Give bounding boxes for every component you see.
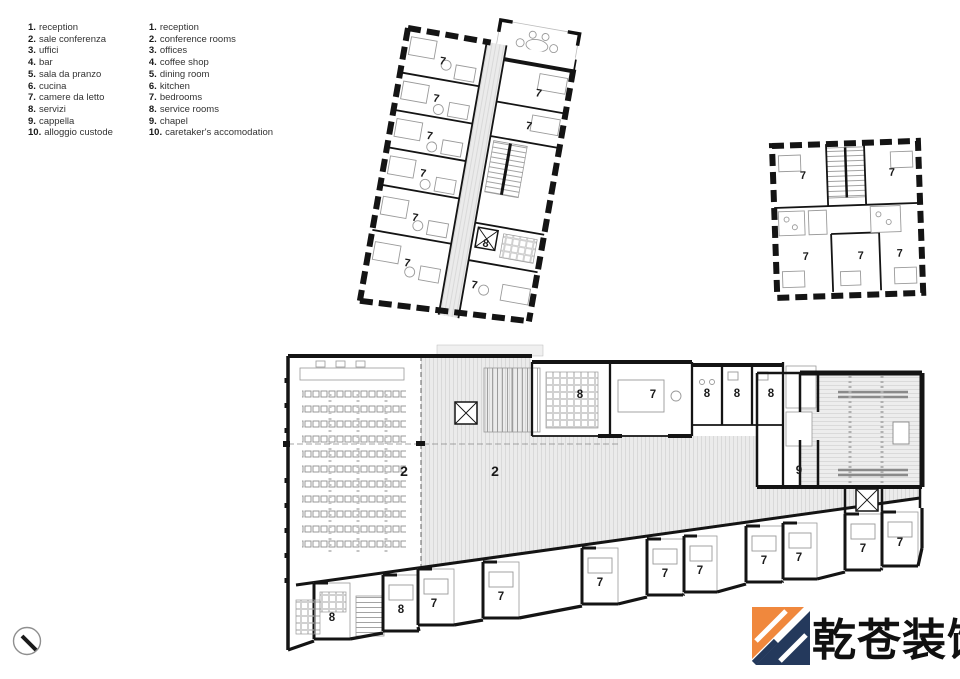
- stage-table: [300, 368, 404, 380]
- bedroom-unit: [383, 575, 419, 631]
- north-arrow-needle: [22, 636, 36, 650]
- room-label: 7: [897, 248, 904, 260]
- room-label: 7: [889, 167, 896, 179]
- bedroom-unit: [746, 526, 782, 582]
- storage-shelves: [546, 372, 598, 428]
- south-stair: [356, 596, 384, 636]
- room-label: 7: [800, 170, 807, 182]
- logo-mark: [752, 607, 810, 665]
- room-label: 8: [329, 612, 336, 624]
- plan-small-block: 7 7 7 7 7: [772, 141, 923, 298]
- room-label: 7: [796, 552, 802, 564]
- room-label: 2: [491, 463, 499, 479]
- plan-bedroom-wing: 7 7 7 7 7 7 7 7 8 7: [360, 4, 580, 330]
- bedroom-unit: [783, 523, 817, 579]
- grid-marker: [416, 441, 425, 446]
- room-label: 7: [858, 250, 865, 262]
- room-label: 7: [597, 577, 603, 589]
- bedroom-unit: [647, 539, 683, 595]
- corner-store: [296, 600, 320, 634]
- room-label: 7: [431, 598, 437, 610]
- north-arrow: [14, 628, 41, 655]
- room-label: 7: [498, 591, 504, 603]
- chair-rows: [302, 390, 406, 554]
- room-label: 7: [697, 565, 703, 577]
- bedroom-unit: [845, 514, 881, 570]
- watermark-text: 乾苍装饰: [812, 615, 960, 666]
- room-label: 8: [704, 388, 711, 400]
- altar: [893, 422, 909, 444]
- watermark-logo: 乾苍装饰: [752, 607, 960, 666]
- block-stair-wall: [845, 147, 847, 197]
- room-label: 8: [734, 388, 741, 400]
- bedroom-unit: [483, 562, 519, 618]
- plan-ground-floor: 2 2 8 7 8 8 8 9 8 8 7 7 7 7 7 7 7 7 7: [283, 345, 922, 650]
- floor-plan-drawing: 7 7 7 7 7 7 7 7 8 7 7 7: [0, 0, 960, 679]
- room-label: 8: [577, 389, 584, 401]
- room-label: 7: [803, 251, 810, 263]
- conference-hall: [300, 361, 406, 554]
- bedroom-unit: [582, 548, 618, 604]
- room-label: 7: [761, 555, 767, 567]
- room-label: 7: [860, 543, 866, 555]
- room-label: 7: [662, 568, 668, 580]
- room-label: 7: [650, 389, 656, 401]
- room-label: 2: [400, 463, 408, 479]
- room-label: 9: [796, 465, 802, 477]
- room-label: 7: [897, 537, 903, 549]
- room-label: 8: [398, 604, 405, 616]
- bedroom-unit: [418, 569, 454, 625]
- stage-furniture: [316, 361, 365, 367]
- bedroom-unit: [684, 536, 717, 592]
- room-label: 8: [768, 388, 775, 400]
